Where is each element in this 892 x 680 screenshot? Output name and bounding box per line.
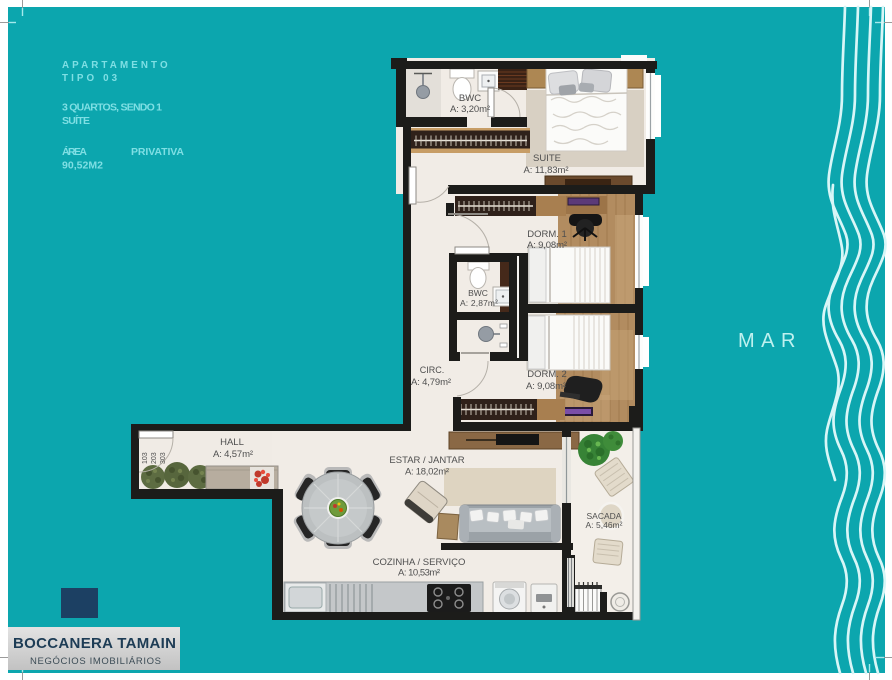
- svg-text:PRIVATIVA: PRIVATIVA: [131, 146, 184, 158]
- svg-text:ESTAR / JANTAR: ESTAR / JANTAR: [389, 455, 464, 466]
- svg-text:DORM. 1: DORM. 1: [527, 229, 567, 240]
- svg-text:A: 10,53m²: A: 10,53m²: [398, 568, 440, 579]
- svg-text:A: 3,20m²: A: 3,20m²: [450, 104, 490, 115]
- svg-text:A: 4,79m²: A: 4,79m²: [411, 377, 451, 388]
- svg-text:BOCCANERA TAMAIN: BOCCANERA TAMAIN: [13, 635, 176, 652]
- svg-text:SUITE: SUITE: [533, 153, 561, 164]
- svg-text:A: 9,08m²: A: 9,08m²: [527, 240, 567, 251]
- svg-text:BWC: BWC: [468, 288, 488, 298]
- svg-text:MAR: MAR: [738, 330, 802, 352]
- svg-text:COZINHA / SERVIÇO: COZINHA / SERVIÇO: [373, 557, 466, 568]
- svg-text:90,52M2: 90,52M2: [62, 160, 103, 172]
- svg-text:APARTAMENTO: APARTAMENTO: [62, 60, 171, 71]
- svg-text:TIPO 03: TIPO 03: [62, 73, 120, 84]
- svg-text:3 QUARTOS, SENDO 1: 3 QUARTOS, SENDO 1: [62, 102, 162, 114]
- svg-text:A: 9,08m²: A: 9,08m²: [526, 381, 566, 392]
- svg-text:203: 203: [151, 452, 158, 464]
- svg-text:A: 2,87m²: A: 2,87m²: [460, 298, 498, 308]
- svg-text:A: 18,02m²: A: 18,02m²: [405, 467, 449, 478]
- svg-text:A: 5,46m²: A: 5,46m²: [586, 520, 623, 530]
- svg-text:HALL: HALL: [220, 437, 244, 448]
- svg-text:DORM. 2: DORM. 2: [527, 369, 567, 380]
- svg-text:A: 4,57m²: A: 4,57m²: [213, 449, 253, 460]
- svg-text:NEGÓCIOS IMOBILIÁRIOS: NEGÓCIOS IMOBILIÁRIOS: [30, 656, 161, 667]
- svg-text:103: 103: [142, 452, 149, 464]
- svg-text:303: 303: [160, 452, 167, 464]
- svg-text:SUÍTE: SUÍTE: [62, 114, 90, 127]
- svg-text:BWC: BWC: [459, 93, 481, 104]
- svg-text:CIRC.: CIRC.: [420, 365, 445, 375]
- svg-text:A: 11,83m²: A: 11,83m²: [524, 165, 569, 176]
- svg-text:ÁREA: ÁREA: [62, 145, 87, 158]
